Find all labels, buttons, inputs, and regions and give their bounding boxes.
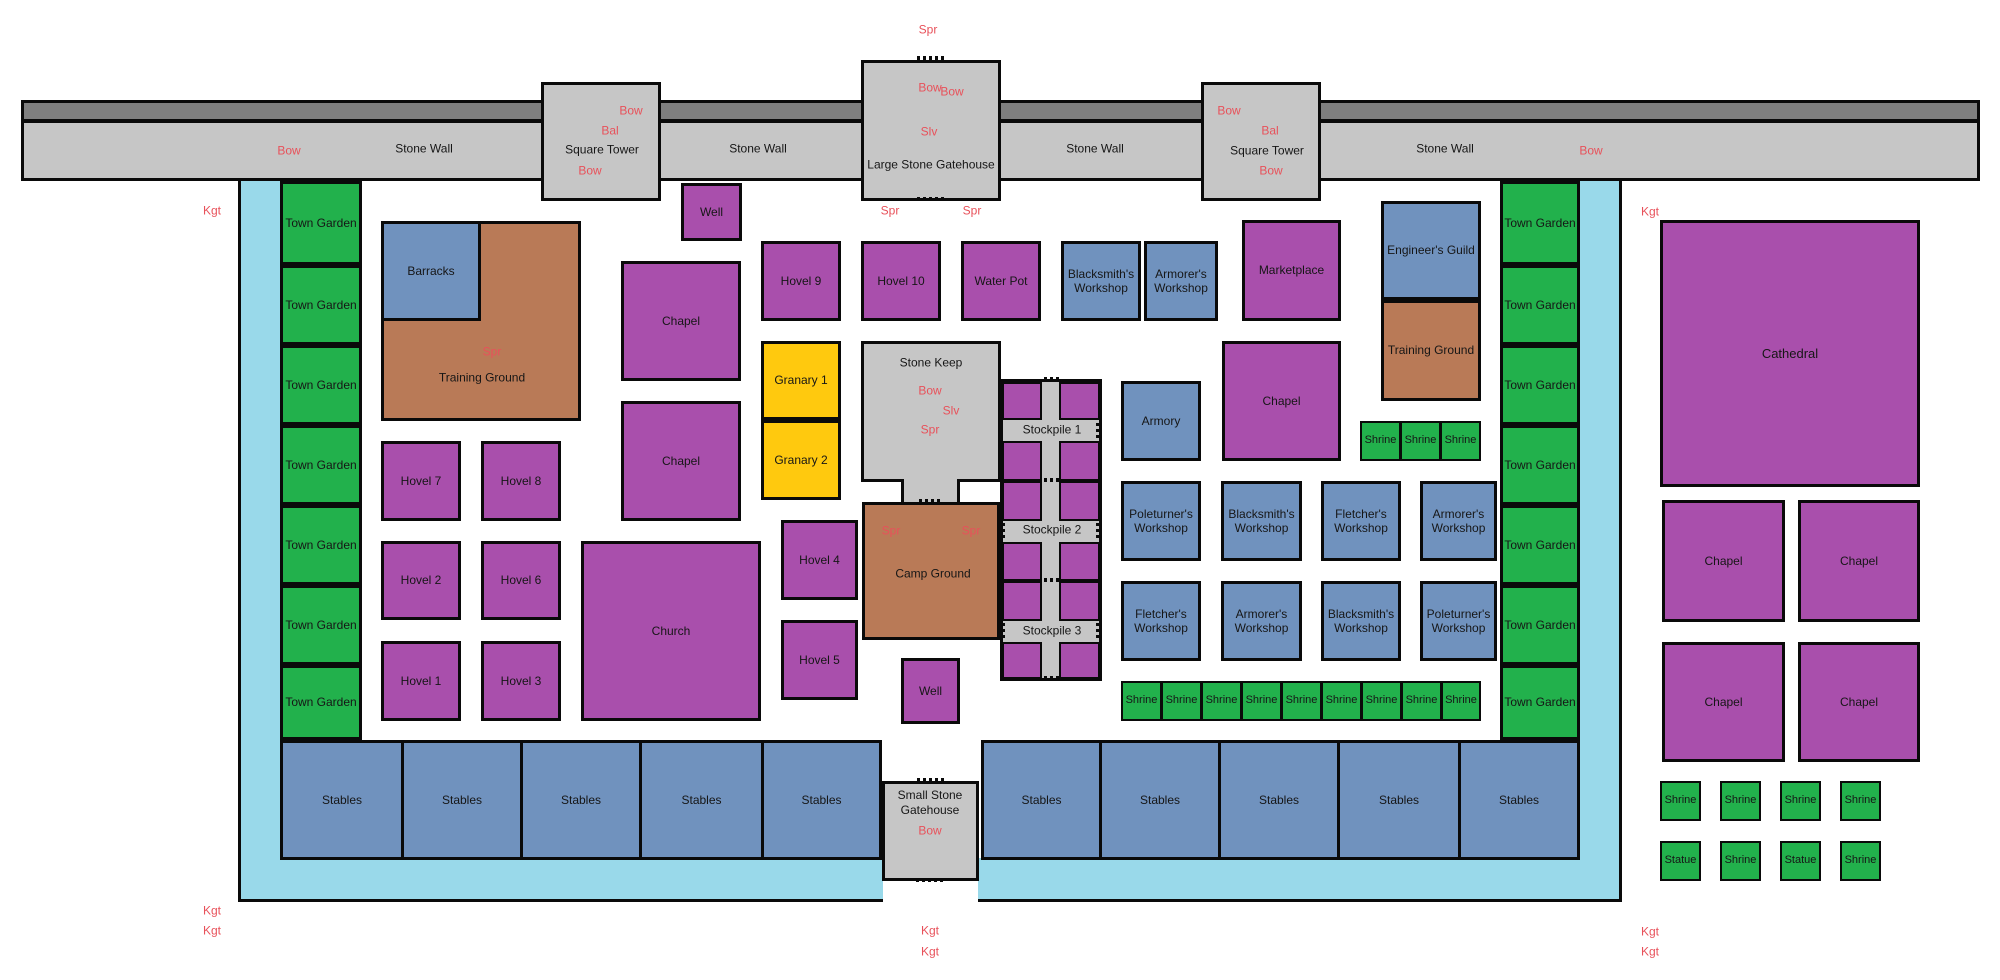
shrine-row-3: Shrine <box>1201 681 1242 721</box>
stables-3: Stables <box>520 740 642 860</box>
town-garden-w4-label: Town Garden <box>285 458 356 472</box>
stockpile3-dots-left <box>1001 622 1005 638</box>
stables-5-label: Stables <box>801 793 841 807</box>
stockpile2-dots-right <box>1096 522 1100 538</box>
marker-kgt-1: Kgt <box>203 204 221 219</box>
fletchers-workshop-r1-label: Fletcher's Workshop <box>1334 507 1388 536</box>
hovel-1-label: Hovel 1 <box>401 674 442 688</box>
stables-10-label: Stables <box>1499 793 1539 807</box>
armory-label: Armory <box>1142 414 1181 428</box>
stables-5: Stables <box>761 740 882 860</box>
stockpile-dots-bottom <box>1044 676 1060 680</box>
stables-4-label: Stables <box>681 793 721 807</box>
stables-1-label: Stables <box>322 793 362 807</box>
town-garden-w2-label: Town Garden <box>285 298 356 312</box>
hovel-9: Hovel 9 <box>761 241 841 321</box>
armorers-workshop-north-label: Armorer's Workshop <box>1154 267 1208 296</box>
shrine-se-1: Shrine <box>1660 781 1701 821</box>
fletchers-workshop-r1: Fletcher's Workshop <box>1321 481 1401 561</box>
stables-3-label: Stables <box>561 793 601 807</box>
shrine-se-1-label: Shrine <box>1665 794 1697 807</box>
poleturners-workshop-r1-label: Poleturner's Workshop <box>1129 507 1193 536</box>
shrine-ne-1: Shrine <box>1360 421 1401 461</box>
shrine-se-3-label: Shrine <box>1785 794 1817 807</box>
town-garden-w4: Town Garden <box>280 425 362 505</box>
stockpile-cell-5a <box>1002 581 1042 621</box>
moat-outline-right <box>1619 181 1622 902</box>
blacksmiths-workshop-r2: Blacksmith's Workshop <box>1321 581 1401 661</box>
town-garden-w1-label: Town Garden <box>285 216 356 230</box>
chapel-central: Chapel <box>1222 341 1341 461</box>
town-garden-w3-label: Town Garden <box>285 378 356 392</box>
gate-dots-small-top <box>917 778 945 782</box>
hovel-1: Hovel 1 <box>381 641 461 721</box>
marker-kgt-2: Kgt <box>1641 205 1659 220</box>
chapel-se-4-label: Chapel <box>1840 695 1878 709</box>
stables-6-label: Stables <box>1021 793 1061 807</box>
granary-1-label: Granary 1 <box>774 373 827 387</box>
shrine-row-5-label: Shrine <box>1286 694 1318 707</box>
stockpile1-dots-right <box>1096 422 1100 438</box>
stockpile-cell-6b <box>1059 642 1100 679</box>
stockpile2-dots-left <box>1001 522 1005 538</box>
stables-8-label: Stables <box>1259 793 1299 807</box>
blacksmiths-workshop-north: Blacksmith's Workshop <box>1061 241 1141 321</box>
shrine-row-9: Shrine <box>1441 681 1481 721</box>
hovel-7-label: Hovel 7 <box>401 474 442 488</box>
hovel-3: Hovel 3 <box>481 641 561 721</box>
town-garden-w2: Town Garden <box>280 265 362 345</box>
blacksmiths-workshop-north-label: Blacksmith's Workshop <box>1068 267 1134 296</box>
cathedral-label: Cathedral <box>1762 346 1818 362</box>
town-garden-e2: Town Garden <box>1500 265 1580 345</box>
stockpile-yard <box>1000 379 1102 681</box>
hovel-2-label: Hovel 2 <box>401 573 442 587</box>
poleturners-workshop-r2: Poleturner's Workshop <box>1420 581 1497 661</box>
fletchers-workshop-r2-label: Fletcher's Workshop <box>1134 607 1188 636</box>
hovel-8-label: Hovel 8 <box>501 474 542 488</box>
stables-8: Stables <box>1218 740 1340 860</box>
small-stone-gatehouse <box>882 781 979 881</box>
cathedral: Cathedral <box>1660 220 1920 487</box>
town-garden-w6-label: Town Garden <box>285 618 356 632</box>
town-garden-e4: Town Garden <box>1500 425 1580 505</box>
chapel-se-2-label: Chapel <box>1840 554 1878 568</box>
marker-kgt-42: Kgt <box>1641 945 1659 960</box>
hovel-4: Hovel 4 <box>781 520 858 600</box>
granary-2-label: Granary 2 <box>774 453 827 467</box>
chapel-se-3: Chapel <box>1662 642 1785 762</box>
fletchers-workshop-r2: Fletcher's Workshop <box>1121 581 1201 661</box>
shrine-se-2-label: Shrine <box>1725 794 1757 807</box>
granary-1: Granary 1 <box>761 341 841 420</box>
town-garden-e4-label: Town Garden <box>1504 458 1575 472</box>
statue-1: Statue <box>1660 841 1701 881</box>
gate-dots-small-bottom <box>916 878 944 882</box>
statue-1-label: Statue <box>1665 854 1697 867</box>
town-garden-e6-label: Town Garden <box>1504 618 1575 632</box>
chapel-west-lower: Chapel <box>621 401 741 521</box>
stockpile-cell-3a <box>1002 481 1042 521</box>
town-garden-e3-label: Town Garden <box>1504 378 1575 392</box>
shrine-ne-2: Shrine <box>1400 421 1441 461</box>
town-garden-w5: Town Garden <box>280 505 362 585</box>
marker-kgt-40: Kgt <box>921 945 939 960</box>
stockpile-cell-6a <box>1002 642 1042 679</box>
marker-spr-22: Spr <box>963 204 982 219</box>
chapel-se-3-label: Chapel <box>1704 695 1742 709</box>
stockpile-cell-1b <box>1059 382 1100 420</box>
armorers-workshop-north: Armorer's Workshop <box>1144 241 1218 321</box>
training-ground-east-label: Training Ground <box>1388 343 1474 357</box>
hovel-6: Hovel 6 <box>481 541 561 620</box>
shrine-ne-2-label: Shrine <box>1405 434 1437 447</box>
stockpile-cell-4a <box>1002 542 1042 581</box>
marker-spr-0: Spr <box>919 23 938 38</box>
armorers-workshop-r2-label: Armorer's Workshop <box>1235 607 1289 636</box>
hovel-6-label: Hovel 6 <box>501 573 542 587</box>
marker-kgt-41: Kgt <box>1641 925 1659 940</box>
hovel-10: Hovel 10 <box>861 241 941 321</box>
chapel-se-2: Chapel <box>1798 500 1920 622</box>
hovel-10-label: Hovel 10 <box>877 274 924 288</box>
hovel-8: Hovel 8 <box>481 441 561 521</box>
stables-9-label: Stables <box>1379 793 1419 807</box>
marker-spr-21: Spr <box>881 204 900 219</box>
marketplace: Marketplace <box>1242 220 1341 321</box>
town-garden-e7-label: Town Garden <box>1504 695 1575 709</box>
hovel-9-label: Hovel 9 <box>781 274 822 288</box>
marker-kgt-37: Kgt <box>203 904 221 919</box>
stables-6: Stables <box>981 740 1102 860</box>
shrine-ne-1-label: Shrine <box>1365 434 1397 447</box>
armorers-workshop-r2: Armorer's Workshop <box>1221 581 1302 661</box>
barracks: Barracks <box>381 221 481 321</box>
stockpile-cell-5b <box>1059 581 1100 621</box>
stockpile-cell-2b <box>1059 441 1100 481</box>
well-north-label: Well <box>700 205 723 219</box>
shrine-row-5: Shrine <box>1281 681 1322 721</box>
shrine-row-3-label: Shrine <box>1206 694 1238 707</box>
church: Church <box>581 541 761 721</box>
gate-dots-large-bottom <box>917 197 945 201</box>
town-garden-w6: Town Garden <box>280 585 362 665</box>
shrine-row-7: Shrine <box>1361 681 1402 721</box>
well-north: Well <box>681 183 742 241</box>
shrine-row-6-label: Shrine <box>1326 694 1358 707</box>
barracks-label: Barracks <box>407 264 454 278</box>
hovel-2: Hovel 2 <box>381 541 461 620</box>
square-tower-east <box>1201 82 1321 201</box>
church-label: Church <box>652 624 691 638</box>
hovel-5-label: Hovel 5 <box>799 653 840 667</box>
stockpile-cell-2a <box>1002 441 1042 481</box>
granary-2: Granary 2 <box>761 420 841 500</box>
town-garden-w1: Town Garden <box>280 181 362 265</box>
town-garden-e1-label: Town Garden <box>1504 216 1575 230</box>
shrine-row-4-label: Shrine <box>1246 694 1278 707</box>
chapel-west-lower-label: Chapel <box>662 454 700 468</box>
shrine-se-6: Shrine <box>1840 841 1881 881</box>
gate-dots-large-top <box>917 56 945 60</box>
moat-outline-left <box>238 181 241 902</box>
blacksmiths-workshop-r1-label: Blacksmith's Workshop <box>1228 507 1294 536</box>
shrine-se-2: Shrine <box>1720 781 1761 821</box>
town-garden-e3: Town Garden <box>1500 345 1580 425</box>
shrine-ne-3: Shrine <box>1440 421 1481 461</box>
chapel-west-upper-label: Chapel <box>662 314 700 328</box>
moat-right <box>1580 181 1622 902</box>
statue-2: Statue <box>1780 841 1821 881</box>
chapel-se-4: Chapel <box>1798 642 1920 762</box>
stone-keep <box>861 341 1001 482</box>
chapel-west-upper: Chapel <box>621 261 741 381</box>
shrine-row-2: Shrine <box>1161 681 1202 721</box>
shrine-row-1-label: Shrine <box>1126 694 1158 707</box>
statue-2-label: Statue <box>1785 854 1817 867</box>
marker-kgt-39: Kgt <box>921 924 939 939</box>
engineers-guild-label: Engineer's Guild <box>1387 243 1475 257</box>
marker-kgt-38: Kgt <box>203 924 221 939</box>
armorers-workshop-r1: Armorer's Workshop <box>1420 481 1497 561</box>
stables-9: Stables <box>1337 740 1461 860</box>
town-garden-w7: Town Garden <box>280 665 362 740</box>
square-tower-west <box>541 82 661 201</box>
moat-left <box>238 181 280 902</box>
marketplace-label: Marketplace <box>1259 263 1324 277</box>
stables-1: Stables <box>280 740 404 860</box>
town-garden-w7-label: Town Garden <box>285 695 356 709</box>
chapel-se-1: Chapel <box>1662 500 1785 622</box>
stables-2: Stables <box>401 740 523 860</box>
stables-4: Stables <box>639 740 764 860</box>
shrine-se-6-label: Shrine <box>1845 854 1877 867</box>
engineers-guild: Engineer's Guild <box>1381 201 1481 300</box>
shrine-row-4: Shrine <box>1241 681 1282 721</box>
training-ground-east: Training Ground <box>1381 300 1481 401</box>
town-layout-map: Town GardenTown GardenTown GardenTown Ga… <box>0 0 2000 980</box>
blacksmiths-workshop-r2-label: Blacksmith's Workshop <box>1328 607 1394 636</box>
armorers-workshop-r1-label: Armorer's Workshop <box>1432 507 1486 536</box>
shrine-ne-3-label: Shrine <box>1445 434 1477 447</box>
shrine-row-1: Shrine <box>1121 681 1162 721</box>
stockpile-dots-top <box>1044 377 1060 381</box>
well-south-label: Well <box>919 684 942 698</box>
stockpile-dots-mid2 <box>1044 578 1060 582</box>
water-pot-label: Water Pot <box>975 274 1028 288</box>
town-garden-e5-label: Town Garden <box>1504 538 1575 552</box>
shrine-se-3: Shrine <box>1780 781 1821 821</box>
stables-2-label: Stables <box>442 793 482 807</box>
chapel-se-1-label: Chapel <box>1704 554 1742 568</box>
armory: Armory <box>1121 381 1201 461</box>
poleturners-workshop-r2-label: Poleturner's Workshop <box>1427 607 1491 636</box>
shrine-row-8-label: Shrine <box>1406 694 1438 707</box>
well-south: Well <box>901 658 960 724</box>
water-pot: Water Pot <box>961 241 1041 321</box>
stockpile-dots-mid1 <box>1044 478 1060 482</box>
moat-gap-gatehouse <box>883 879 978 902</box>
hovel-4-label: Hovel 4 <box>799 553 840 567</box>
camp-ground <box>862 502 1000 640</box>
blacksmiths-workshop-r1: Blacksmith's Workshop <box>1221 481 1302 561</box>
town-garden-e5: Town Garden <box>1500 505 1580 585</box>
poleturners-workshop-r1: Poleturner's Workshop <box>1121 481 1201 561</box>
stockpile-cell-3b <box>1059 481 1100 521</box>
shrine-row-9-label: Shrine <box>1445 694 1477 707</box>
shrine-se-5-label: Shrine <box>1725 854 1757 867</box>
chapel-central-label: Chapel <box>1262 394 1300 408</box>
town-garden-e7: Town Garden <box>1500 665 1580 740</box>
gate-dots-keep <box>919 499 943 503</box>
shrine-se-4-label: Shrine <box>1845 794 1877 807</box>
town-garden-e6: Town Garden <box>1500 585 1580 665</box>
town-garden-e1: Town Garden <box>1500 181 1580 265</box>
stables-10: Stables <box>1458 740 1580 860</box>
stables-7: Stables <box>1099 740 1221 860</box>
stables-7-label: Stables <box>1140 793 1180 807</box>
hovel-5: Hovel 5 <box>781 620 858 700</box>
stockpile-cell-1a <box>1002 382 1042 420</box>
shrine-se-5: Shrine <box>1720 841 1761 881</box>
hovel-7: Hovel 7 <box>381 441 461 521</box>
town-garden-w5-label: Town Garden <box>285 538 356 552</box>
stockpile-cell-4b <box>1059 542 1100 581</box>
stockpile3-dots-right <box>1096 622 1100 638</box>
shrine-row-7-label: Shrine <box>1366 694 1398 707</box>
town-garden-e2-label: Town Garden <box>1504 298 1575 312</box>
town-garden-w3: Town Garden <box>280 345 362 425</box>
shrine-row-6: Shrine <box>1321 681 1362 721</box>
hovel-3-label: Hovel 3 <box>501 674 542 688</box>
shrine-row-8: Shrine <box>1401 681 1442 721</box>
large-stone-gatehouse <box>861 60 1001 201</box>
shrine-row-2-label: Shrine <box>1166 694 1198 707</box>
shrine-se-4: Shrine <box>1840 781 1881 821</box>
